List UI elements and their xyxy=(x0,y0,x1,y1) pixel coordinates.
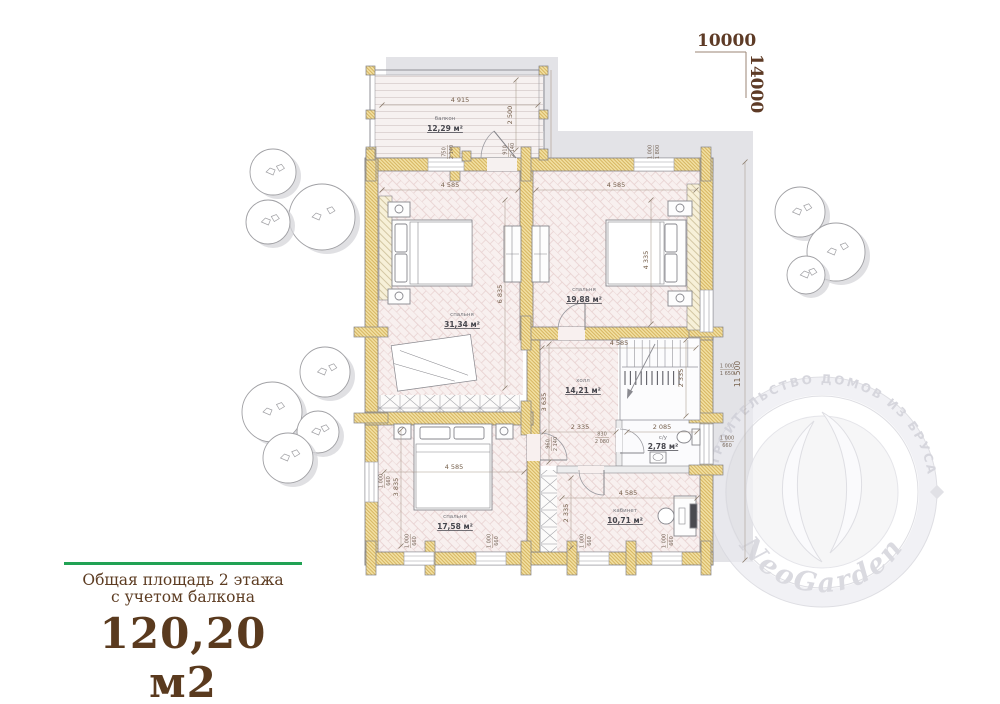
window xyxy=(404,552,434,565)
room-name: кабинет xyxy=(613,508,638,514)
dim-label: 2 335 xyxy=(571,423,590,431)
room-name: спальня xyxy=(443,514,467,520)
opening-width: 830 xyxy=(597,432,607,438)
window xyxy=(365,462,378,502)
window xyxy=(428,158,464,171)
tree xyxy=(300,347,355,401)
room-name: холл xyxy=(576,378,590,384)
opening-width: 1 000 xyxy=(720,364,734,370)
timber-joint xyxy=(354,413,388,423)
room-name: балкон xyxy=(435,116,456,122)
dim-label: 3 835 xyxy=(392,478,400,497)
sink xyxy=(650,452,666,463)
dim-label: 6 835 xyxy=(496,285,504,304)
overall-height-label: 14000 xyxy=(746,54,766,113)
staircase xyxy=(620,338,700,420)
balcony-deck xyxy=(375,75,543,158)
site-dimensions: 10000 14000 xyxy=(695,31,766,113)
room-area: 31,34 м² xyxy=(444,320,480,329)
timber-joint xyxy=(521,401,531,435)
window xyxy=(476,552,506,565)
opening-width: 910 xyxy=(503,145,509,155)
chair xyxy=(658,508,674,524)
opening-width: 1 000 xyxy=(487,534,493,548)
timber-joint xyxy=(521,541,531,575)
opening-width: 960 xyxy=(546,439,552,449)
room-area: 14,21 м² xyxy=(565,386,601,395)
summary-title-line2: с учетом балкона xyxy=(62,589,304,606)
dim-label: 11 500 xyxy=(733,361,742,387)
timber-joint xyxy=(354,327,388,337)
dim-label: 4 335 xyxy=(642,251,650,270)
timber-joint xyxy=(366,541,376,575)
wardrobe xyxy=(376,395,520,412)
opening-width: 1 000 xyxy=(405,534,411,548)
opening-width: 1 000 xyxy=(662,534,668,548)
room-area: 10,71 м² xyxy=(607,516,643,525)
opening-width: 1 000 xyxy=(379,474,385,488)
opening-height: 2 140 xyxy=(449,145,455,159)
summary-title-line1: Общая площадь 2 этажа xyxy=(62,572,304,589)
opening-width: 1 000 xyxy=(580,534,586,548)
dim-label: 4 915 xyxy=(451,96,470,104)
timber-joint xyxy=(701,541,711,575)
green-divider xyxy=(64,562,302,565)
opening-width: 1 000 xyxy=(720,436,734,442)
total-area-value: 120,20 м2 xyxy=(62,609,304,704)
dim-label: 2 085 xyxy=(653,423,672,431)
window xyxy=(579,552,609,565)
opening-height: 1 800 xyxy=(655,145,661,159)
opening-height: 660 xyxy=(722,443,732,449)
room-name: с/у xyxy=(659,435,668,441)
dim-label: 4 585 xyxy=(607,181,626,189)
opening-size-label: 1 0001 650 xyxy=(720,364,734,378)
overall-width-label: 10000 xyxy=(697,31,756,51)
window xyxy=(700,424,713,464)
timber-joint xyxy=(689,465,723,475)
room-name: спальня xyxy=(450,312,474,318)
opening-height: 660 xyxy=(587,536,593,546)
dim-label: 2 500 xyxy=(506,106,514,125)
wardrobe xyxy=(541,470,557,552)
opening-height: 660 xyxy=(412,536,418,546)
opening-height: 660 xyxy=(386,476,392,486)
tree xyxy=(289,184,360,254)
room-area: 2,78 м² xyxy=(648,442,679,451)
opening-height: 2 140 xyxy=(553,437,559,451)
window xyxy=(634,158,674,171)
timber-joint xyxy=(521,316,531,350)
timber-joint xyxy=(626,541,636,575)
opening-height: 1 650 xyxy=(720,371,734,377)
dim-label: 4 585 xyxy=(619,489,638,497)
dim-label: 4 585 xyxy=(441,181,460,189)
timber-joint xyxy=(567,541,577,575)
room-area: 12,29 м² xyxy=(427,124,463,133)
opening-height: 2 080 xyxy=(595,439,609,445)
window xyxy=(700,290,713,332)
dim-label: 4 585 xyxy=(445,463,464,471)
room-area: 19,88 м² xyxy=(566,295,602,304)
opening-size-label: 1 0001 800 xyxy=(648,145,662,159)
opening-width: 750 xyxy=(442,147,448,157)
room-area: 17,58 м² xyxy=(437,522,473,531)
opening-width: 1 000 xyxy=(648,145,654,159)
bed xyxy=(392,220,472,286)
floor-plan-sheet: СТРОИТЕЛЬСТВО ДОМОВ ИЗ БРУСА NeoGarden xyxy=(0,0,1000,704)
opening-height: 2 140 xyxy=(510,143,516,157)
window xyxy=(652,552,682,565)
dim-label: 2 335 xyxy=(677,369,685,388)
monitor-icon xyxy=(690,504,697,528)
dim-label: 3 635 xyxy=(540,393,548,412)
dim-label: 4 585 xyxy=(610,339,629,347)
area-summary: Общая площадь 2 этажа с учетом балкона 1… xyxy=(62,556,304,704)
tree xyxy=(250,149,301,199)
opening-height: 660 xyxy=(494,536,500,546)
dim-label: 2 335 xyxy=(562,504,570,523)
opening-height: 660 xyxy=(669,536,675,546)
timber-joint xyxy=(701,147,711,181)
tree xyxy=(246,200,295,248)
room-name: спальня xyxy=(572,287,596,293)
timber-joint xyxy=(521,147,531,181)
